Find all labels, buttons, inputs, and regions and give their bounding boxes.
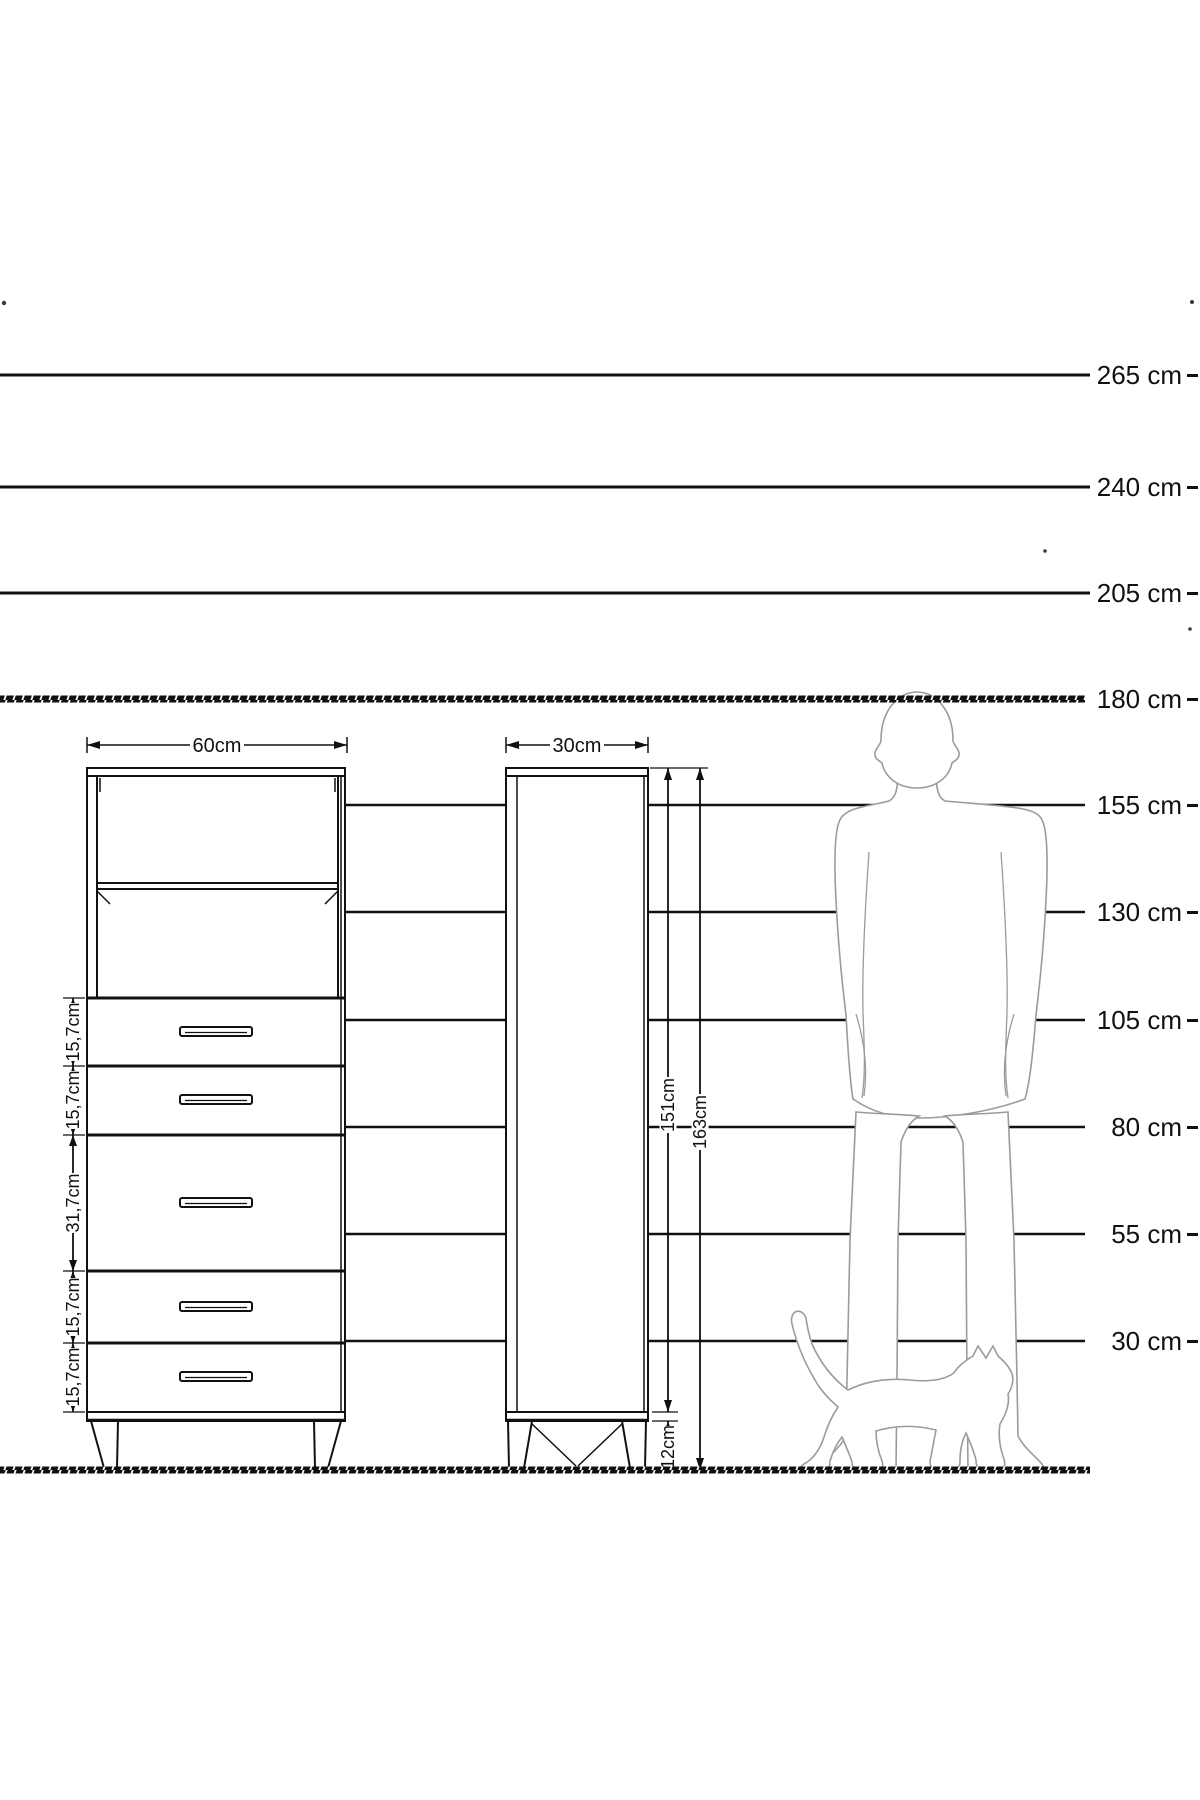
ruler-label-105cm: 105 cm (1090, 1002, 1182, 1038)
ruler-tick-dash (1187, 1126, 1198, 1129)
ruler-labels: 265 cm240 cm205 cm180 cm155 cm130 cm105 … (0, 0, 1200, 1800)
ruler-label-55cm: 55 cm (1090, 1216, 1182, 1252)
ruler-label-205cm: 205 cm (1090, 575, 1182, 611)
ruler-label-80cm: 80 cm (1090, 1109, 1182, 1145)
ruler-label-30cm: 30 cm (1090, 1323, 1182, 1359)
ruler-tick-dash (1187, 911, 1198, 914)
ruler-tick-dash (1187, 698, 1198, 701)
ruler-label-155cm: 155 cm (1090, 787, 1182, 823)
ruler-tick-dash (1187, 1019, 1198, 1022)
ruler-tick-dash (1187, 1233, 1198, 1236)
ruler-label-240cm: 240 cm (1090, 469, 1182, 505)
ruler-tick-dash (1187, 374, 1198, 377)
furniture-dimension-diagram: 60cm 30cm (0, 0, 1200, 1800)
ruler-tick-dash (1187, 1340, 1198, 1343)
ruler-label-130cm: 130 cm (1090, 894, 1182, 930)
ruler-tick-dash (1187, 804, 1198, 807)
ruler-tick-dash (1187, 592, 1198, 595)
ruler-label-180cm: 180 cm (1090, 681, 1182, 717)
ruler-tick-dash (1187, 486, 1198, 489)
ruler-label-265cm: 265 cm (1090, 357, 1182, 393)
